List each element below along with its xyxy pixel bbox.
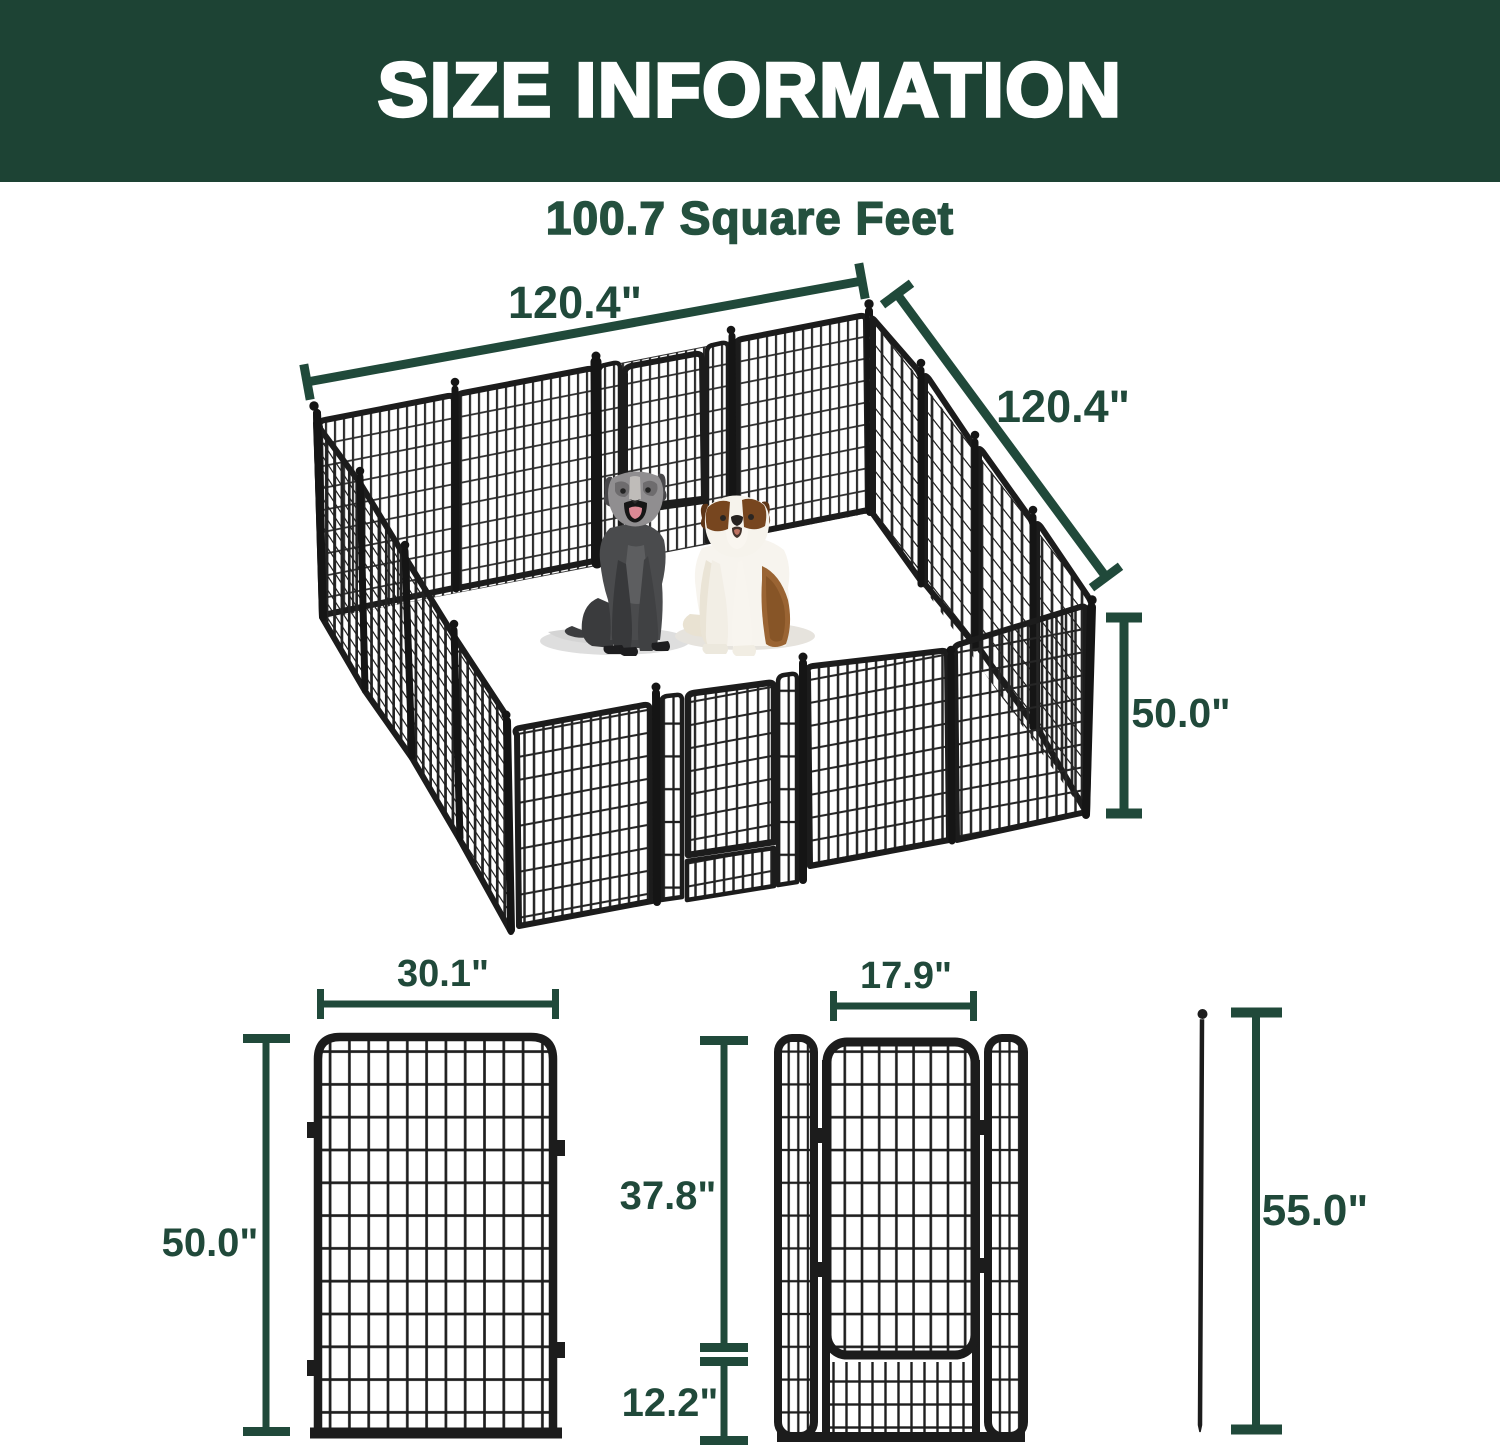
svg-text:100.7 Square Feet: 100.7 Square Feet <box>546 192 954 244</box>
svg-text:37.8": 37.8" <box>620 1174 717 1218</box>
svg-text:12.2": 12.2" <box>622 1381 719 1425</box>
svg-text:50.0": 50.0" <box>162 1221 259 1265</box>
svg-text:30.1": 30.1" <box>397 953 489 995</box>
svg-text:SIZE INFORMATION: SIZE INFORMATION <box>378 48 1123 133</box>
svg-text:120.4": 120.4" <box>996 381 1130 432</box>
svg-text:50.0": 50.0" <box>1131 690 1230 736</box>
svg-text:17.9": 17.9" <box>860 955 952 997</box>
svg-text:55.0": 55.0" <box>1262 1186 1369 1235</box>
svg-text:120.4": 120.4" <box>508 277 642 328</box>
